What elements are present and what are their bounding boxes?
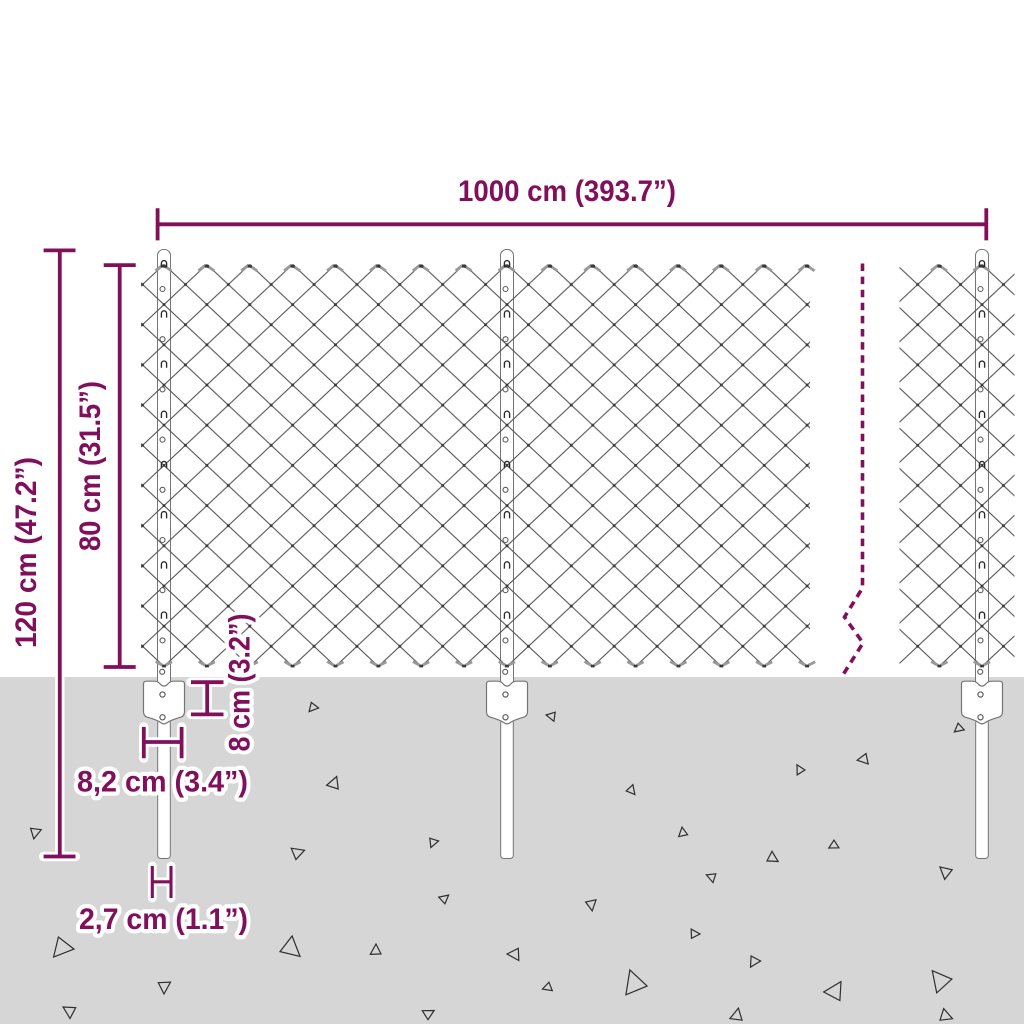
svg-text:8,2 cm (3.4”): 8,2 cm (3.4”) <box>77 766 248 799</box>
svg-text:2,7 cm (1.1”): 2,7 cm (1.1”) <box>79 903 248 936</box>
svg-text:80 cm (31.5”): 80 cm (31.5”) <box>74 381 107 551</box>
svg-text:1000 cm (393.7”): 1000 cm (393.7”) <box>458 175 676 208</box>
svg-text:120 cm (47.2”): 120 cm (47.2”) <box>10 457 43 648</box>
svg-text:8 cm (3.2”): 8 cm (3.2”) <box>224 614 257 752</box>
